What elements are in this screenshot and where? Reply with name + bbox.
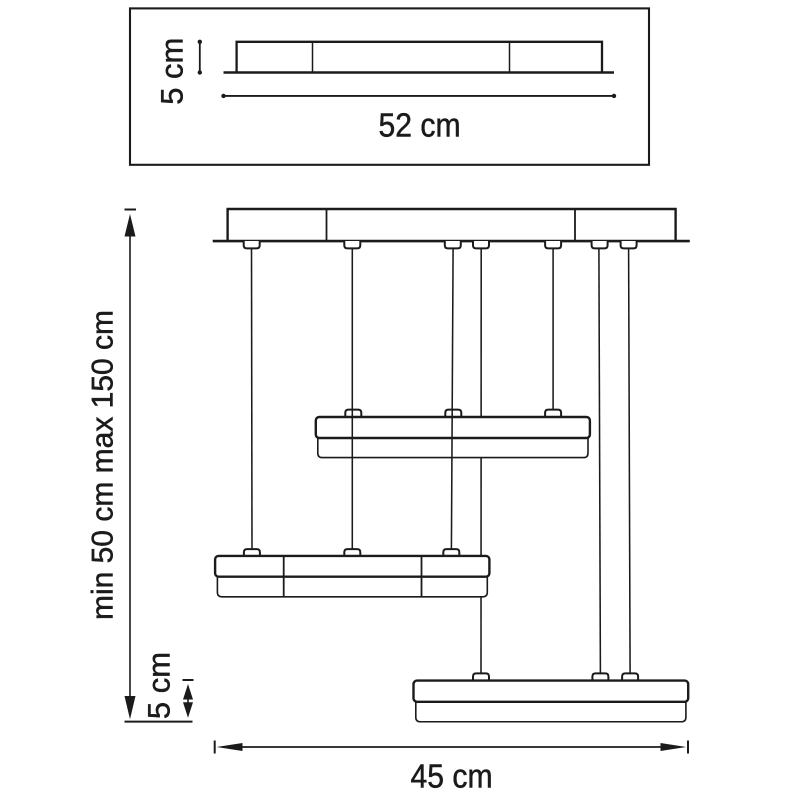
svg-text:45 cm: 45 cm — [410, 758, 492, 795]
svg-text:5 cm: 5 cm — [155, 38, 190, 105]
svg-text:5 cm: 5 cm — [142, 652, 177, 719]
svg-text:52 cm: 52 cm — [378, 107, 460, 144]
svg-text:min 50 cm max 150 cm: min 50 cm max 150 cm — [87, 310, 120, 620]
